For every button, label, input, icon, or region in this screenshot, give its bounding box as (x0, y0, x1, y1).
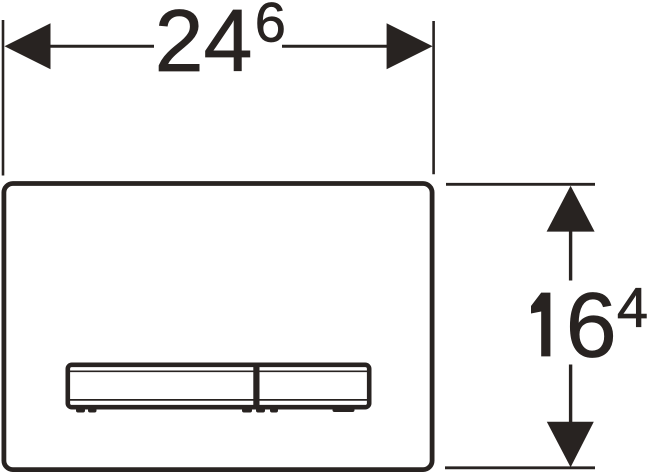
svg-text:6: 6 (566, 275, 617, 377)
svg-text:24: 24 (155, 0, 253, 90)
svg-text:6: 6 (255, 0, 286, 54)
svg-text:4: 4 (617, 276, 648, 339)
